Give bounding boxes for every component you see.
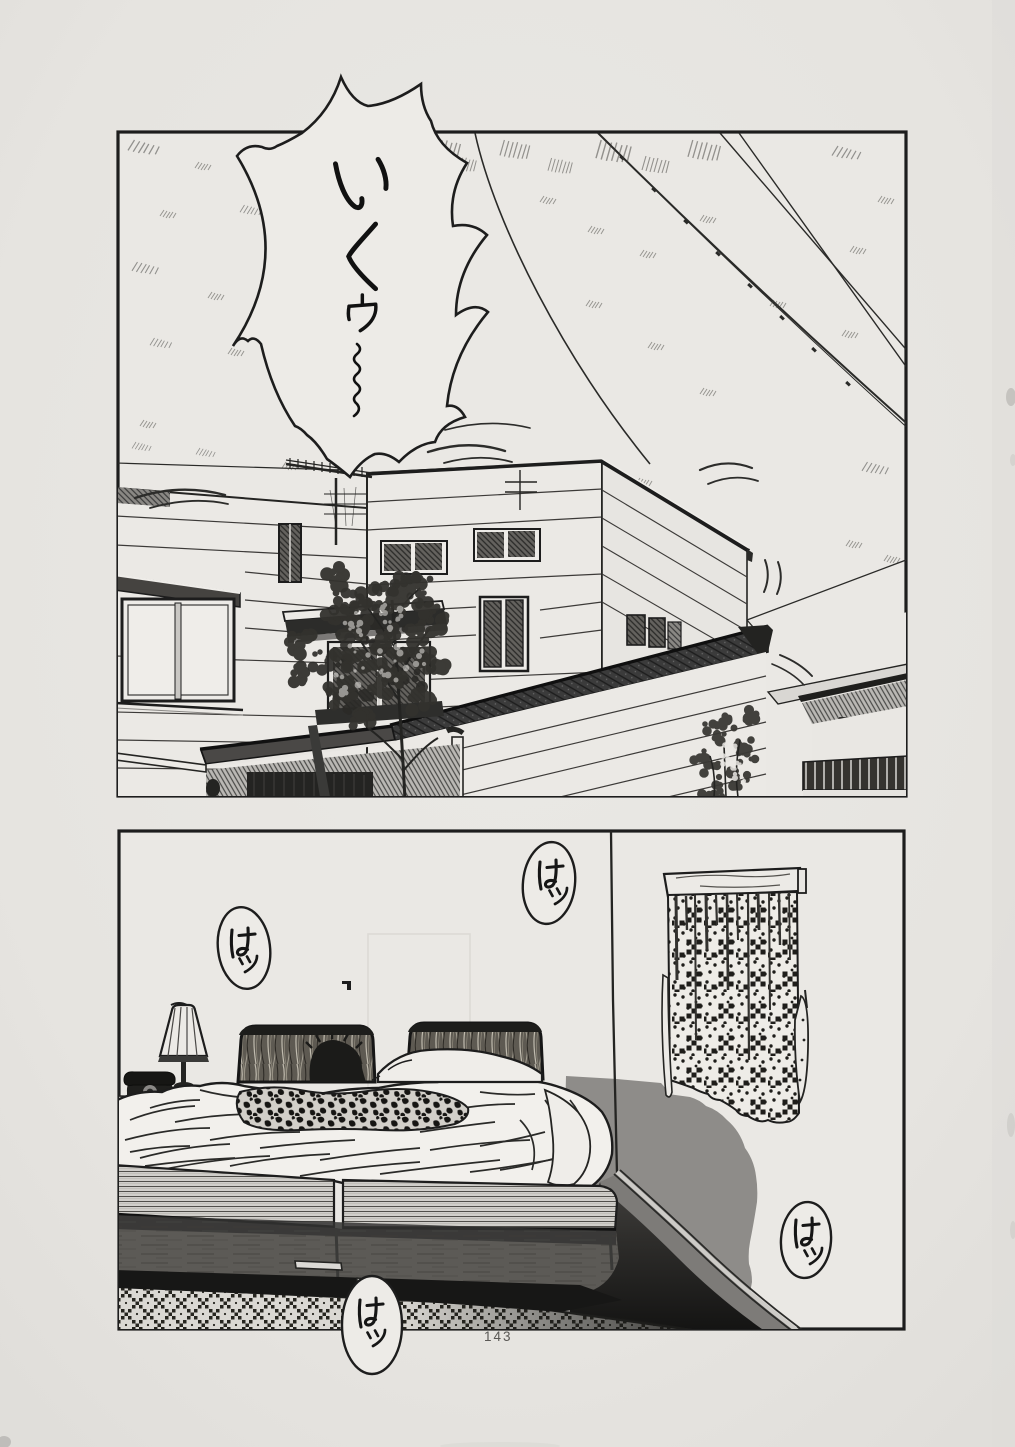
svg-text:143: 143 [484, 1329, 513, 1344]
